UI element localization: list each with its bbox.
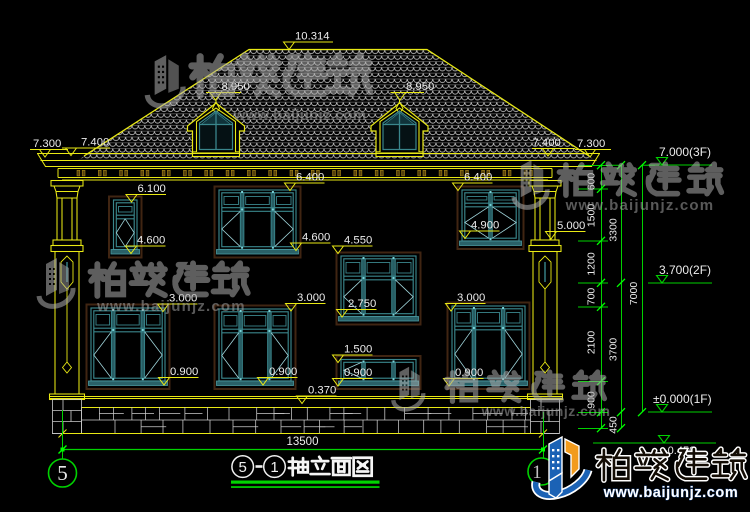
svg-text:www.baijunjz.com: www.baijunjz.com	[233, 107, 367, 124]
svg-text:7.300: 7.300	[577, 138, 605, 150]
svg-text:1.500: 1.500	[344, 344, 372, 356]
svg-text:www.baijunjz.com: www.baijunjz.com	[603, 485, 739, 501]
svg-text:6.100: 6.100	[138, 183, 166, 195]
svg-text:2.750: 2.750	[348, 298, 376, 310]
svg-text:7.400: 7.400	[533, 137, 561, 149]
svg-text:±0.000(1F): ±0.000(1F)	[653, 392, 712, 406]
svg-text:4.600: 4.600	[137, 235, 165, 247]
svg-text:7.300: 7.300	[33, 138, 61, 150]
svg-text:0.900: 0.900	[170, 366, 198, 378]
svg-text:0.370: 0.370	[308, 385, 336, 397]
svg-text:7000: 7000	[628, 282, 640, 306]
svg-text:3.000: 3.000	[297, 292, 325, 304]
svg-text:1: 1	[532, 462, 542, 483]
svg-text:6.400: 6.400	[296, 172, 324, 184]
svg-text:10.314: 10.314	[295, 31, 330, 43]
svg-text:7.400: 7.400	[81, 137, 109, 149]
svg-text:4.600: 4.600	[302, 232, 330, 244]
svg-text:7.000(3F): 7.000(3F)	[659, 145, 711, 159]
svg-text:1200: 1200	[586, 252, 598, 276]
svg-text:6.400: 6.400	[464, 172, 492, 184]
svg-text:3700: 3700	[608, 338, 620, 362]
svg-text:3.700(2F): 3.700(2F)	[659, 263, 711, 277]
svg-text:0.900: 0.900	[344, 367, 372, 379]
svg-text:700: 700	[586, 288, 598, 306]
svg-text:4.550: 4.550	[344, 235, 372, 247]
svg-text:5: 5	[57, 461, 68, 485]
svg-text:www.baijunjz.com: www.baijunjz.com	[565, 197, 715, 214]
svg-text:5: 5	[239, 459, 247, 476]
svg-text:4.900: 4.900	[471, 220, 499, 232]
svg-text:www.baijunjz.com: www.baijunjz.com	[96, 298, 246, 315]
svg-text:1: 1	[270, 459, 278, 476]
svg-text:2100: 2100	[586, 331, 598, 355]
svg-text:www.baijunjz.com: www.baijunjz.com	[481, 403, 611, 419]
svg-text:5.000: 5.000	[557, 220, 585, 232]
svg-text:8.950: 8.950	[406, 81, 434, 93]
svg-text:3.000: 3.000	[457, 292, 485, 304]
svg-text:0.900: 0.900	[269, 366, 297, 378]
svg-text:3300: 3300	[608, 218, 620, 242]
svg-text:13500: 13500	[287, 436, 319, 448]
